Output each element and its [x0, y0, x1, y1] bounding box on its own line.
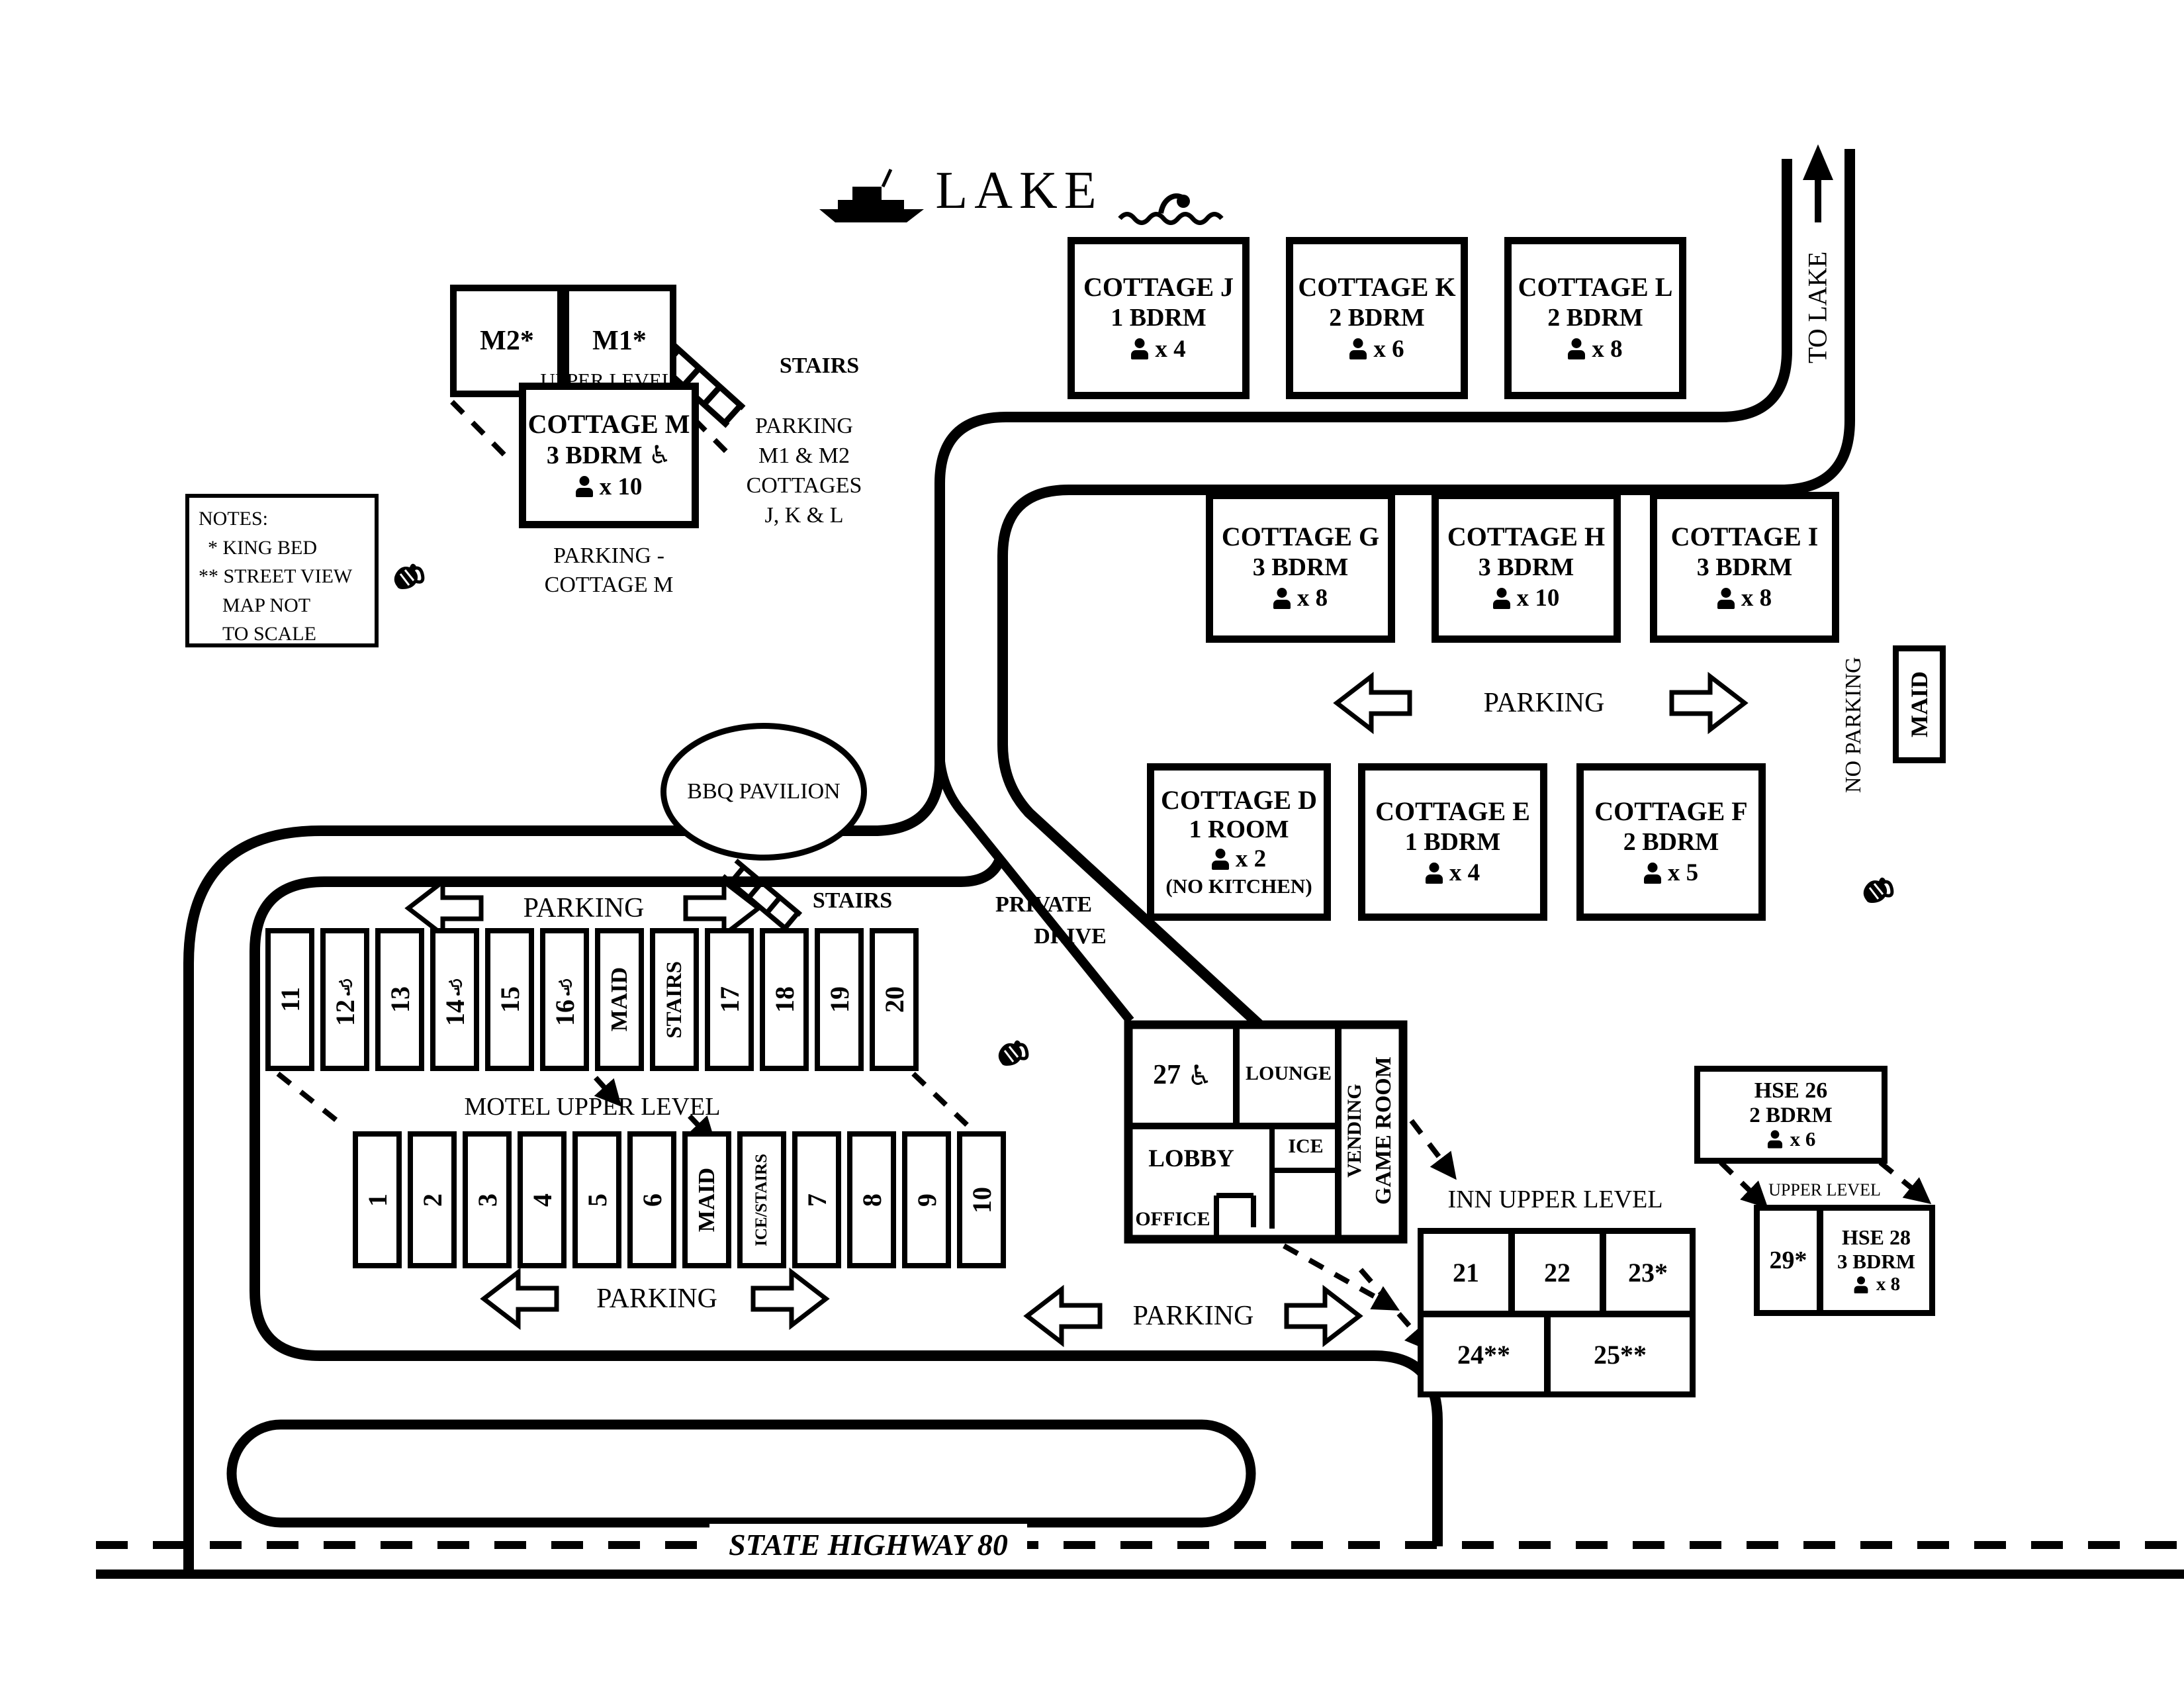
motel-maid-lower-label: MAID	[694, 1168, 720, 1232]
parking-arrow-left-motel-upper	[408, 882, 481, 935]
cottage-h-name: COTTAGE H	[1447, 522, 1605, 551]
motel-room-6-label: 6	[637, 1194, 668, 1207]
to-lake-arrow-head	[1803, 144, 1833, 180]
wheelchair-icon: ♿	[649, 440, 671, 469]
motel-room-12-label: 12	[330, 1000, 360, 1026]
motel-room-9: 9	[902, 1131, 951, 1268]
motel-room-20: 20	[870, 928, 919, 1071]
motel-room-15-label: 15	[494, 986, 525, 1013]
parking-note-jkl-2: M1 & M2	[715, 442, 893, 471]
chipmunk-icon-2	[1864, 878, 1892, 903]
motel-room-4-label: 4	[527, 1194, 558, 1207]
cottage-i: COTTAGE I 3 BDRM x 8	[1650, 492, 1839, 643]
maid-hut: MAID	[1893, 645, 1946, 763]
highway-text: STATE HIGHWAY 80	[729, 1527, 1008, 1562]
stairs-label-m: STAIRS	[766, 352, 872, 380]
person-icon	[1493, 588, 1510, 609]
cottage-g-beds: 3 BDRM	[1253, 554, 1349, 582]
house-upper-level-text: UPPER LEVEL	[1768, 1180, 1881, 1200]
lake-title: LAKE	[927, 159, 1112, 222]
inn-lobby: LOBBY	[1138, 1143, 1244, 1174]
motel-room-17: 17	[705, 928, 754, 1071]
inn-room-27-label: 27	[1153, 1059, 1181, 1091]
person-icon	[1644, 863, 1661, 884]
parking-label-motel-lower: PARKING	[563, 1281, 751, 1317]
motel-room-19-label: 19	[824, 986, 855, 1013]
person-icon	[1212, 849, 1229, 870]
motel-room-5: 5	[572, 1131, 621, 1268]
no-parking-text: NO PARKING	[1841, 657, 1866, 794]
notes-line-2: ** STREET VIEW	[199, 562, 369, 591]
parking-note-jkl-3: COTTAGES	[715, 471, 893, 501]
parking-label-ghi: PARKING	[1443, 685, 1645, 721]
person-icon	[1349, 338, 1367, 359]
notes-line-1: * KING BED	[208, 534, 369, 563]
highway-label: STATE HIGHWAY 80	[709, 1524, 1027, 1565]
house-26: HSE 26 2 BDRM x 6	[1694, 1066, 1888, 1164]
motel-room-10: 10	[957, 1131, 1006, 1268]
inn-lounge-label: LOUNGE	[1246, 1062, 1332, 1085]
motel-room-16: 16♿	[540, 928, 589, 1071]
motel-caption-text: MOTEL UPPER LEVEL	[464, 1092, 720, 1121]
cottage-i-occ: x 8	[1741, 584, 1772, 612]
cottage-m-name: COTTAGE M	[528, 410, 690, 439]
motel-room-11: 11	[265, 928, 314, 1071]
inn-room-21: 21	[1418, 1228, 1514, 1317]
swimmer-icon	[1120, 195, 1222, 223]
inn-vending-label: VENDING	[1343, 1084, 1366, 1178]
parking-text-ghi: PARKING	[1484, 687, 1605, 719]
parking-arrow-left-motel-lower	[484, 1272, 557, 1325]
inn-room-24: 24**	[1418, 1311, 1550, 1397]
lake-title-text: LAKE	[935, 161, 1103, 221]
inn-room-25: 25**	[1545, 1311, 1696, 1397]
motel-room-1: 1	[353, 1131, 402, 1268]
stairs-text-m: STAIRS	[780, 353, 859, 379]
motel-room-15: 15	[485, 928, 534, 1071]
stairs-label-motel: STAIRS	[799, 887, 905, 915]
bbq-pavilion-text: BBQ PAVILION	[687, 779, 840, 804]
unit-m2-label: M2*	[480, 325, 534, 357]
cottage-f-occ: x 5	[1668, 859, 1698, 887]
cottage-l-beds: 2 BDRM	[1547, 305, 1643, 332]
dash-m2	[452, 402, 511, 461]
person-icon	[1854, 1276, 1868, 1293]
notes-box: NOTES: * KING BED ** STREET VIEW MAP NOT…	[185, 494, 379, 647]
parking-arrow-right-ghi	[1672, 677, 1745, 729]
wheelchair-icon: ♿	[332, 973, 359, 1000]
motel-room-12: 12♿	[320, 928, 369, 1071]
inn-room-21-label: 21	[1453, 1257, 1479, 1288]
parking-text-motel-lower: PARKING	[596, 1283, 717, 1315]
motel-room-6: 6	[627, 1131, 676, 1268]
cottage-e-name: COTTAGE E	[1375, 797, 1530, 826]
cottage-e-beds: 1 BDRM	[1405, 829, 1501, 857]
inn-ice-label: ICE	[1288, 1135, 1323, 1158]
cottage-d-beds: 1 ROOM	[1189, 816, 1289, 844]
cottage-j: COTTAGE J 1 BDRM x 4	[1068, 237, 1250, 399]
motel-room-20-label: 20	[879, 986, 910, 1013]
motel-room-1-label: 1	[362, 1194, 393, 1207]
house-26-beds: 2 BDRM	[1749, 1103, 1833, 1127]
inn-room-24-label: 24**	[1457, 1339, 1510, 1370]
motel-maid-upper: MAID	[595, 928, 644, 1071]
cottage-h-occ: x 10	[1517, 584, 1560, 612]
parking-note-jkl-1: PARKING	[715, 412, 893, 442]
cottage-f-beds: 2 BDRM	[1623, 829, 1719, 857]
person-icon	[1426, 863, 1443, 884]
parking-text-motel-upper: PARKING	[523, 892, 645, 924]
motel-room-8: 8	[847, 1131, 896, 1268]
dash-hse26-left	[1721, 1162, 1764, 1205]
motel-room-7-label: 7	[801, 1194, 833, 1207]
parking-note-m-2: COTTAGE M	[523, 571, 695, 600]
inn-lobby-label: LOBBY	[1148, 1145, 1234, 1173]
unit-m1-label: M1*	[592, 325, 647, 357]
cottage-f-name: COTTAGE F	[1594, 797, 1748, 826]
parking-arrow-left-ghi	[1337, 677, 1410, 729]
inn-room-22-label: 22	[1544, 1257, 1570, 1288]
cottage-f: COTTAGE F 2 BDRM x 5	[1576, 763, 1766, 921]
person-icon	[576, 476, 593, 497]
chipmunk-icon-1	[394, 564, 423, 589]
motel-room-11-label: 11	[275, 987, 306, 1012]
person-icon	[1568, 338, 1585, 359]
inn-game-room: GAME ROOM	[1367, 1031, 1400, 1230]
inn-office-label: OFFICE	[1135, 1208, 1210, 1231]
notes-line-4: TO SCALE	[222, 620, 369, 649]
boat-icon	[819, 169, 924, 222]
inn-room-23-label: 23*	[1628, 1257, 1668, 1288]
inn-ice: ICE	[1276, 1132, 1336, 1161]
motel-room-9-label: 9	[911, 1194, 942, 1207]
cottage-h-beds: 3 BDRM	[1479, 554, 1574, 582]
motel-room-13: 13	[375, 928, 424, 1071]
cottage-e: COTTAGE E 1 BDRM x 4	[1358, 763, 1547, 921]
private-drive-label-1: PRIVATE	[981, 892, 1107, 917]
cottage-m: COTTAGE M 3 BDRM ♿ x 10	[519, 383, 699, 528]
parking-arrow-right-motel-upper	[686, 882, 758, 935]
motel-room-18-label: 18	[769, 986, 800, 1013]
motel-caption: MOTEL UPPER LEVEL	[463, 1091, 721, 1123]
motel-room-2-label: 2	[417, 1194, 448, 1207]
motel-room-17-label: 17	[714, 986, 745, 1013]
motel-room-14-label: 14	[440, 1000, 470, 1026]
cottage-j-beds: 1 BDRM	[1111, 305, 1206, 332]
dash-motel-right	[913, 1074, 970, 1128]
motel-room-3: 3	[463, 1131, 512, 1268]
cottage-g: COTTAGE G 3 BDRM x 8	[1206, 492, 1395, 643]
inn-office: OFFICE	[1130, 1206, 1215, 1233]
inn-caption-text: INN UPPER LEVEL	[1447, 1185, 1662, 1214]
to-lake-text: TO LAKE	[1802, 252, 1833, 363]
cottage-k-occ: x 6	[1373, 335, 1404, 363]
motel-room-19: 19	[815, 928, 864, 1071]
private-drive-label-2: DRIVE	[1014, 924, 1126, 949]
cottage-i-beds: 3 BDRM	[1697, 554, 1793, 582]
house-26-occ: x 6	[1790, 1127, 1816, 1151]
to-lake-label: TO LAKE	[1795, 240, 1840, 375]
motel-room-5-label: 5	[582, 1194, 613, 1207]
motel-room-13-label: 13	[385, 986, 416, 1013]
motel-stairs-upper: STAIRS	[650, 928, 699, 1071]
cottage-k-beds: 2 BDRM	[1329, 305, 1425, 332]
person-icon	[1768, 1130, 1782, 1148]
inn-room-22: 22	[1509, 1228, 1606, 1317]
motel-room-14: 14♿	[430, 928, 479, 1071]
motel-room-4: 4	[518, 1131, 567, 1268]
notes-heading: NOTES:	[199, 504, 369, 534]
cottage-g-name: COTTAGE G	[1222, 522, 1379, 551]
resort-map: LAKE TO LAKE M2* M1* UPPER LEVEL STAIRS …	[0, 0, 2184, 1688]
wheelchair-icon: ♿	[552, 973, 578, 1000]
cottage-m-beds: 3 BDRM	[547, 442, 643, 469]
house-room-29-label: 29*	[1770, 1246, 1807, 1275]
person-icon	[1717, 588, 1735, 609]
private-drive-text-1: PRIVATE	[995, 892, 1092, 917]
motel-room-8-label: 8	[856, 1194, 887, 1207]
house-28-name: HSE 28	[1842, 1225, 1911, 1250]
parking-note-cottage-m: PARKING - COTTAGE M	[523, 541, 695, 600]
cottage-g-occ: x 8	[1297, 584, 1328, 612]
inn-room-27: 27 ♿	[1133, 1054, 1232, 1096]
cottage-m-occ: x 10	[600, 473, 643, 501]
motel-room-16-label: 16	[550, 1000, 580, 1026]
house-28-29: 29* HSE 28 3 BDRM x 8	[1754, 1205, 1935, 1316]
stairs-text-motel: STAIRS	[813, 888, 892, 914]
parking-label-motel-upper: PARKING	[491, 890, 676, 926]
person-icon	[1131, 338, 1148, 359]
inn-room-25-label: 25**	[1594, 1339, 1647, 1370]
chipmunk-icon-3	[999, 1041, 1027, 1066]
inn-room-23: 23*	[1600, 1228, 1696, 1317]
notes-line-3: MAP NOT	[222, 591, 369, 620]
parking-arrow-right-inn	[1287, 1289, 1359, 1342]
cottage-l: COTTAGE L 2 BDRM x 8	[1504, 237, 1686, 399]
house-28: HSE 28 3 BDRM x 8	[1817, 1205, 1935, 1316]
inn-caption: INN UPPER LEVEL	[1423, 1184, 1688, 1215]
inn-vending: VENDING	[1341, 1046, 1369, 1215]
no-parking-label: NO PARKING	[1835, 614, 1873, 836]
cottage-k: COTTAGE K 2 BDRM x 6	[1286, 237, 1468, 399]
cottage-e-occ: x 4	[1449, 859, 1480, 887]
road-bottom-loop	[232, 1425, 1251, 1523]
inn-lounge: LOUNGE	[1240, 1059, 1337, 1088]
motel-room-2: 2	[408, 1131, 457, 1268]
parking-label-inn: PARKING	[1102, 1298, 1285, 1334]
motel-ice-stairs-label: ICE/STAIRS	[752, 1154, 771, 1246]
cottage-k-name: COTTAGE K	[1298, 273, 1455, 302]
house-28-occ: x 8	[1876, 1274, 1900, 1295]
cottage-i-name: COTTAGE I	[1671, 522, 1819, 551]
cottage-d-name: COTTAGE D	[1161, 786, 1317, 815]
parking-note-m-1: PARKING -	[523, 541, 695, 571]
motel-ice-stairs: ICE/STAIRS	[737, 1131, 786, 1268]
cottage-l-occ: x 8	[1592, 335, 1622, 363]
motel-room-10-label: 10	[966, 1187, 997, 1213]
cottage-h: COTTAGE H 3 BDRM x 10	[1432, 492, 1621, 643]
private-drive-text-2: DRIVE	[1034, 924, 1107, 949]
cottage-j-occ: x 4	[1155, 335, 1185, 363]
parking-arrow-right-motel-lower	[753, 1272, 826, 1325]
cottage-d-note: (NO KITCHEN)	[1165, 874, 1312, 898]
cottage-j-name: COTTAGE J	[1083, 273, 1234, 302]
motel-room-7: 7	[792, 1131, 841, 1268]
cottage-d-occ: x 2	[1236, 845, 1266, 873]
wheelchair-icon: ♿	[442, 973, 469, 1000]
parking-text-inn: PARKING	[1133, 1300, 1254, 1332]
cottage-l-name: COTTAGE L	[1518, 273, 1673, 302]
motel-stairs-upper-label: STAIRS	[662, 961, 687, 1039]
dash-motel-left	[278, 1074, 346, 1128]
motel-room-18: 18	[760, 928, 809, 1071]
person-icon	[1273, 588, 1291, 609]
motel-maid-lower: MAID	[682, 1131, 731, 1268]
maid-hut-text: MAID	[1905, 671, 1933, 737]
parking-arrow-left-inn	[1027, 1289, 1100, 1342]
inn-game-room-label: GAME ROOM	[1371, 1056, 1396, 1205]
wheelchair-icon: ♿	[1187, 1059, 1212, 1092]
bbq-pavilion: BBQ PAVILION	[660, 723, 867, 861]
cottage-d: COTTAGE D 1 ROOM x 2 (NO KITCHEN)	[1147, 763, 1331, 921]
parking-note-jkl: PARKING M1 & M2 COTTAGES J, K & L	[715, 412, 893, 531]
motel-room-3-label: 3	[472, 1194, 503, 1207]
house-26-name: HSE 26	[1754, 1078, 1828, 1103]
house-room-29: 29*	[1754, 1205, 1823, 1316]
motel-maid-upper-label: MAID	[606, 967, 633, 1031]
house-28-beds: 3 BDRM	[1837, 1250, 1915, 1274]
inn-upper-rooms: 21 22 23* 24** 25**	[1418, 1228, 1696, 1397]
parking-note-jkl-4: J, K & L	[715, 501, 893, 531]
house-upper-level-label: UPPER LEVEL	[1762, 1180, 1888, 1201]
